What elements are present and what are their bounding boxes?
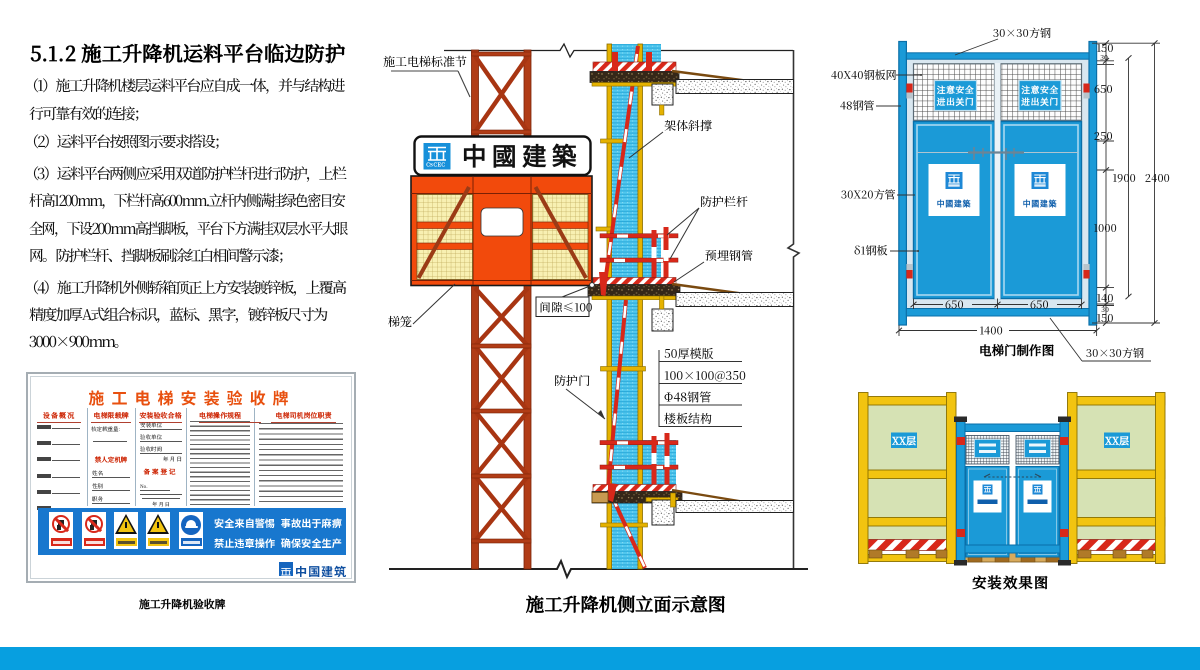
svg-text:30×30方钢: 30×30方钢 xyxy=(1086,345,1144,361)
svg-text:δ1钢板: δ1钢板 xyxy=(854,243,887,259)
svg-text:Φ48钢管: Φ48钢管 xyxy=(664,389,711,406)
svg-text:间隙≤100: 间隙≤100 xyxy=(540,300,593,316)
svg-text:1400: 1400 xyxy=(979,323,1003,339)
svg-text:施工电梯标准节: 施工电梯标准节 xyxy=(383,53,467,70)
svg-text:中國建築: 中國建築 xyxy=(462,138,582,173)
svg-text:中國建築: 中國建築 xyxy=(937,199,971,210)
svg-text:650: 650 xyxy=(945,297,964,313)
svg-text:架体斜撑: 架体斜撑 xyxy=(664,117,712,134)
svg-text:30×30方钢: 30×30方钢 xyxy=(993,25,1051,41)
svg-text:梯笼: 梯笼 xyxy=(388,313,412,330)
svg-text:进出关门: 进出关门 xyxy=(1020,95,1059,108)
svg-text:650: 650 xyxy=(1030,297,1049,313)
svg-text:中國建築: 中國建築 xyxy=(1023,199,1057,210)
svg-text:150: 150 xyxy=(1096,310,1114,326)
svg-text:XX层: XX层 xyxy=(1104,433,1130,448)
svg-text:预埋钢管: 预埋钢管 xyxy=(705,247,753,264)
svg-text:140: 140 xyxy=(1096,290,1114,306)
svg-text:防护门: 防护门 xyxy=(554,372,590,389)
svg-text:30: 30 xyxy=(1100,53,1108,63)
svg-text:48钢管: 48钢管 xyxy=(840,98,874,114)
svg-text:250: 250 xyxy=(1094,128,1113,144)
svg-text:40X40钢板网: 40X40钢板网 xyxy=(831,67,897,83)
svg-text:防护栏杆: 防护栏杆 xyxy=(700,193,748,210)
svg-text:2400: 2400 xyxy=(1145,170,1170,186)
svg-text:1900: 1900 xyxy=(1112,170,1136,186)
svg-text:CSCEC: CSCEC xyxy=(426,162,445,169)
svg-text:楼板结构: 楼板结构 xyxy=(664,410,712,427)
svg-text:1000: 1000 xyxy=(1093,220,1117,236)
svg-text:650: 650 xyxy=(1094,81,1113,97)
svg-text:50厚模版: 50厚模版 xyxy=(664,345,714,362)
svg-text:100×100@350: 100×100@350 xyxy=(664,367,746,384)
svg-text:进出关门: 进出关门 xyxy=(936,95,975,108)
svg-text:30X20方管: 30X20方管 xyxy=(841,187,896,203)
svg-text:XX层: XX层 xyxy=(891,433,917,448)
